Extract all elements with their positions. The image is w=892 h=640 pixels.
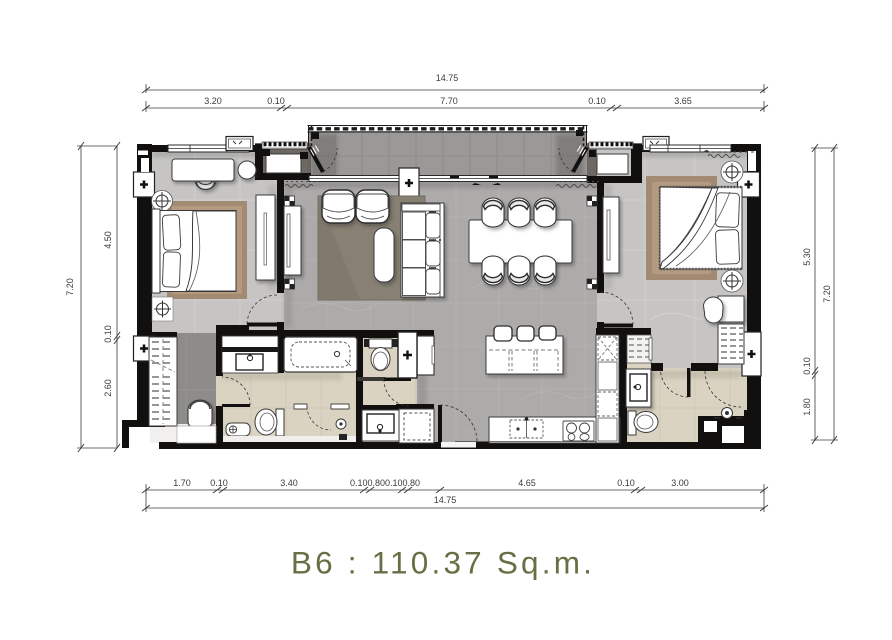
svg-text:0.100.800.100.80: 0.100.800.100.80 xyxy=(350,478,420,488)
svg-text:2.60: 2.60 xyxy=(103,379,113,397)
svg-text:1.80: 1.80 xyxy=(802,398,812,416)
svg-text:4.50: 4.50 xyxy=(103,231,113,249)
svg-text:14.75: 14.75 xyxy=(436,73,459,83)
svg-text:7.20: 7.20 xyxy=(822,285,832,303)
svg-text:1.70: 1.70 xyxy=(173,478,191,488)
svg-text:0.10: 0.10 xyxy=(802,357,812,375)
svg-text:0.10: 0.10 xyxy=(267,96,285,106)
svg-text:0.10: 0.10 xyxy=(617,478,635,488)
svg-text:3.00: 3.00 xyxy=(671,478,689,488)
svg-text:5.30: 5.30 xyxy=(802,248,812,266)
svg-text:3.20: 3.20 xyxy=(204,96,222,106)
svg-text:0.10: 0.10 xyxy=(103,325,113,343)
svg-text:7.20: 7.20 xyxy=(65,278,75,296)
svg-text:3.40: 3.40 xyxy=(280,478,298,488)
svg-text:3.65: 3.65 xyxy=(674,96,692,106)
svg-text:7.70: 7.70 xyxy=(440,96,458,106)
svg-text:0.10: 0.10 xyxy=(588,96,606,106)
svg-text:0.10: 0.10 xyxy=(210,478,228,488)
svg-text:14.75: 14.75 xyxy=(434,495,457,505)
svg-text:4.65: 4.65 xyxy=(518,478,536,488)
svg-text:B6 : 110.37 Sq.m.: B6 : 110.37 Sq.m. xyxy=(291,545,595,581)
